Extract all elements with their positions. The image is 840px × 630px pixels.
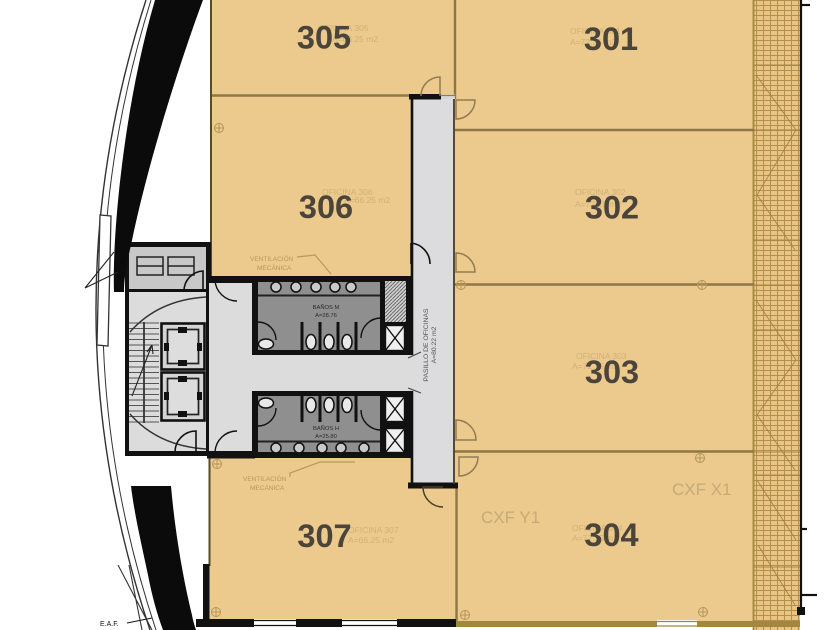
svg-text:A=25.80: A=25.80 xyxy=(315,434,337,440)
svg-text:307: 307 xyxy=(297,518,351,554)
svg-text:OFICINA 307: OFICINA 307 xyxy=(348,525,399,535)
svg-text:VENTILACIÓN: VENTILACIÓN xyxy=(250,254,294,263)
svg-text:306: 306 xyxy=(299,189,353,225)
svg-text:302: 302 xyxy=(585,190,639,226)
svg-text:A=28.76: A=28.76 xyxy=(315,313,337,319)
svg-text:BAÑOS H: BAÑOS H xyxy=(313,425,339,432)
svg-text:303: 303 xyxy=(585,354,639,390)
svg-text:VENTILACIÓN: VENTILACIÓN xyxy=(243,474,287,483)
svg-text:A=80.22 m2: A=80.22 m2 xyxy=(431,326,438,363)
svg-text:MECÁNICA: MECÁNICA xyxy=(250,483,285,492)
svg-text:CXF Y1: CXF Y1 xyxy=(481,508,540,527)
svg-text:CXF X1: CXF X1 xyxy=(672,480,732,499)
svg-text:PASILLO DE OFICINAS: PASILLO DE OFICINAS xyxy=(423,308,430,382)
svg-text:A=66.25 m2: A=66.25 m2 xyxy=(348,535,394,545)
svg-text:E.A.F.: E.A.F. xyxy=(100,621,119,628)
svg-text:304: 304 xyxy=(584,517,638,553)
svg-text:MECÁNICA: MECÁNICA xyxy=(257,263,292,272)
svg-text:BAÑOS M: BAÑOS M xyxy=(313,304,340,311)
svg-text:301: 301 xyxy=(584,21,638,57)
svg-text:305: 305 xyxy=(297,20,351,56)
